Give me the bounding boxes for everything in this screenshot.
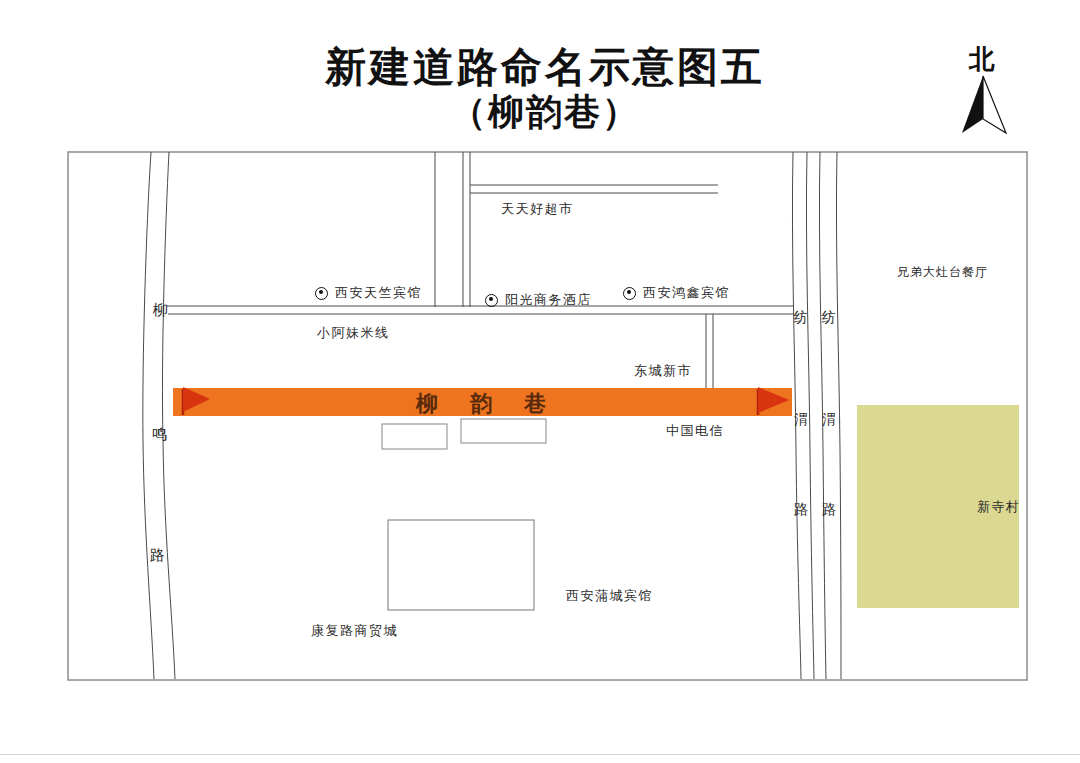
poi-marker-icon	[315, 287, 328, 300]
road-naming-map: 新建道路命名示意图五 （柳韵巷） 北	[0, 0, 1080, 763]
fangwei-road-char: 渭	[794, 411, 808, 429]
large-building-rect	[388, 520, 534, 610]
poi-dongcheng-market: 东城新市	[634, 362, 692, 380]
poi-brothers-restaurant: 兄弟大灶台餐厅	[897, 264, 988, 281]
poi-marker-icon	[623, 287, 636, 300]
poi-xinsi-village: 新寺村	[977, 498, 1021, 516]
poi-label: 阳光商务酒店	[505, 291, 592, 309]
poi-hongxin-hotel: 西安鸿鑫宾馆	[623, 284, 730, 302]
poi-pucheng-hotel: 西安蒲城宾馆	[566, 587, 653, 605]
poi-label: 西安天竺宾馆	[335, 284, 422, 302]
liuming-road-char: 路	[150, 546, 165, 565]
poi-label: 西安鸿鑫宾馆	[643, 284, 730, 302]
fangwei-road-char: 纺	[822, 309, 836, 327]
north-arrow-icon	[962, 76, 1006, 133]
mid-lane-lines	[706, 314, 713, 388]
map-canvas	[0, 0, 1080, 763]
liuming-road-char: 鸣	[152, 425, 167, 444]
fangwei-road-char: 路	[822, 501, 836, 519]
liuyun-lane-name: 柳韵巷	[416, 389, 578, 419]
supermarket-block-lines	[470, 185, 718, 193]
fangwei-road-char: 路	[794, 501, 808, 519]
fangwei-road-char: 纺	[794, 309, 808, 327]
poi-kangfu-trade-city: 康复路商贸城	[311, 622, 398, 640]
upper-lane-lines	[435, 152, 470, 307]
fangwei-road-char: 渭	[822, 411, 836, 429]
small-building-rects	[382, 419, 546, 449]
poi-sunshine-hotel: 阳光商务酒店	[485, 291, 592, 309]
poi-marker-icon	[485, 294, 498, 307]
poi-tianzhu-hotel: 西安天竺宾馆	[315, 284, 422, 302]
poi-china-telecom: 中国电信	[666, 422, 724, 440]
poi-noodle-shop: 小阿妹米线	[317, 324, 390, 342]
liuming-road-char: 柳	[153, 301, 168, 320]
cross-road-lines	[167, 306, 794, 314]
poi-supermarket: 天天好超市	[501, 200, 574, 218]
bottom-divider	[0, 754, 1080, 755]
liuming-road-lines	[143, 152, 175, 679]
